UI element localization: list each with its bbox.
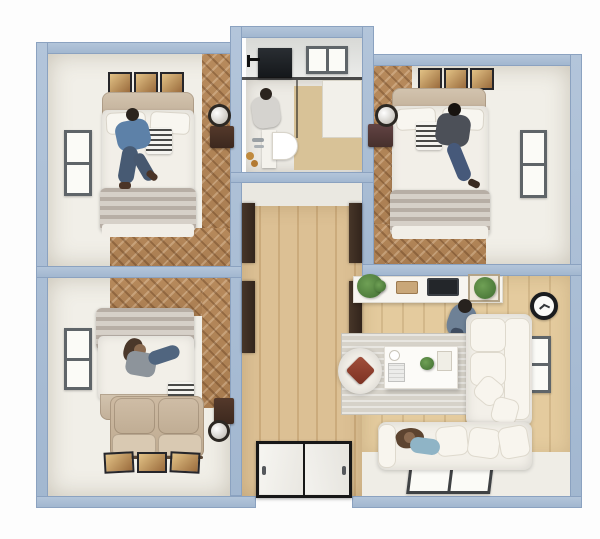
wall-bottom-left-segment: [36, 496, 256, 508]
window-divider: [326, 49, 329, 71]
window-divider: [67, 162, 89, 165]
plant-pot-right: [474, 277, 496, 299]
wall-clock: [530, 292, 558, 320]
bed-foot: [392, 226, 488, 239]
entrance-door-divider: [303, 444, 305, 495]
window-bathroom: [306, 46, 348, 74]
sofa-back-cushion: [435, 424, 470, 457]
wall-bottom-right-segment: [352, 496, 582, 508]
toiletry-bottle: [246, 152, 254, 160]
shoe: [119, 182, 131, 189]
round-mirror: [208, 104, 231, 127]
table-plant: [420, 357, 434, 370]
wall-art-frame: [470, 68, 494, 90]
console-decor: [396, 281, 418, 294]
shower-glass-divider: [296, 80, 298, 138]
entrance-door-frame: [256, 441, 352, 498]
window-divider: [67, 358, 89, 361]
door-panel-left-upper: [242, 203, 255, 263]
sofa-arm: [378, 424, 396, 468]
round-mirror: [375, 104, 398, 127]
person-head-man-bed-tr: [448, 103, 461, 116]
wall-art-frame: [134, 72, 158, 94]
round-mirror: [208, 420, 230, 442]
window-bedroom-bottom-left: [64, 328, 92, 390]
television: [427, 278, 459, 296]
shower-arm: [247, 55, 250, 67]
wall-mid-horizontal-left: [36, 266, 242, 278]
shower-glass-partition: [242, 77, 362, 80]
nightstand: [210, 126, 234, 148]
bathroom-side-cabinet: [322, 80, 362, 138]
wall-art-frame: [108, 72, 132, 94]
wall-art-frame: [160, 72, 184, 94]
floor-plan-render: [0, 0, 600, 539]
plant-leaf: [374, 280, 386, 292]
clock-hand-minute: [539, 304, 545, 309]
person-head-man-standing: [458, 299, 472, 313]
sofa-seat-cushion: [470, 318, 506, 352]
door-panel-left-lower: [242, 281, 255, 353]
wall-mid-vertical-left: [230, 26, 242, 496]
door-panel-right-upper: [349, 203, 362, 263]
wall-art-frame: [444, 68, 468, 90]
wall-art-frame: [169, 451, 200, 474]
faucet: [252, 138, 264, 142]
wall-art-frame: [103, 451, 134, 474]
person-head-bathroom: [260, 88, 272, 100]
wall-art-frame: [137, 452, 167, 473]
entrance-door-leaf-left: [260, 445, 303, 494]
person-head-man-bed-tl: [126, 108, 139, 121]
open-book: [388, 363, 405, 382]
wall-top-right: [368, 54, 582, 66]
window-bedroom-top-right: [520, 130, 547, 198]
wall-right: [570, 54, 582, 508]
wood-strip-bedroom-bottom-left: [202, 278, 230, 408]
teapot: [389, 350, 400, 361]
serving-tray: [437, 351, 452, 371]
wall-bathroom-bottom: [230, 172, 374, 183]
loveseat-back-cushion: [158, 398, 199, 434]
faucet: [254, 145, 264, 148]
nightstand: [368, 124, 393, 147]
wall-top-left: [36, 42, 242, 54]
hallway-upper-face: [242, 183, 362, 207]
window-bedroom-top-left: [64, 130, 92, 196]
door-handle: [262, 466, 266, 475]
sofa-back-cushion: [496, 424, 531, 461]
bathroom-dark-cabinet: [258, 48, 292, 78]
wall-art-frame: [418, 68, 442, 90]
wall-mid-vertical-right: [362, 26, 374, 276]
toiletry-bottle: [251, 160, 258, 167]
bed-foot: [102, 224, 194, 237]
door-handle: [342, 466, 346, 475]
loveseat-back-cushion: [114, 398, 155, 434]
sofa-back-cushion: [466, 426, 502, 460]
window-divider: [523, 163, 544, 166]
wall-bathroom-top: [234, 26, 374, 38]
